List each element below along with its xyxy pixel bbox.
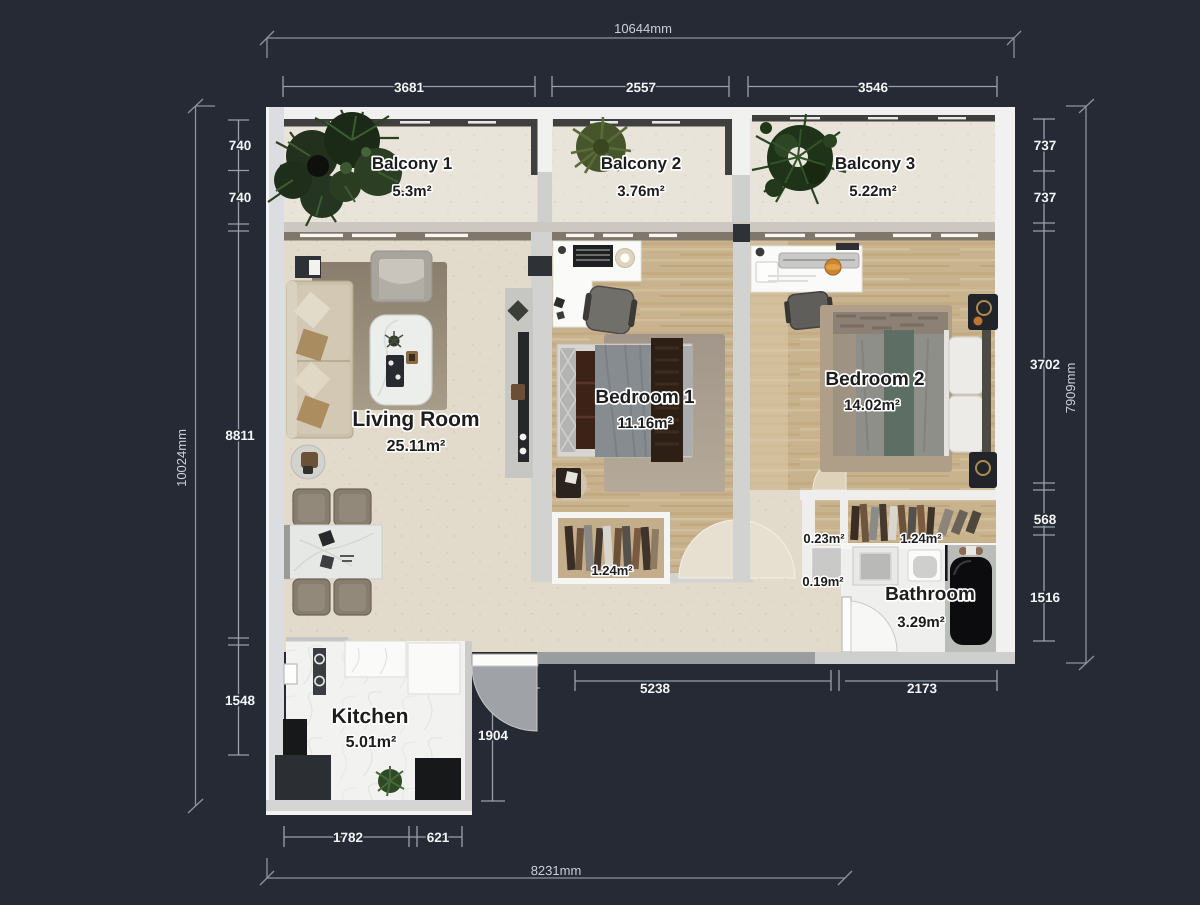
svg-text:8811: 8811: [225, 428, 255, 443]
svg-text:737: 737: [1034, 190, 1057, 205]
svg-text:0.19m²: 0.19m²: [802, 574, 844, 589]
svg-text:2173: 2173: [907, 681, 938, 696]
svg-text:7909mm: 7909mm: [1063, 363, 1078, 414]
svg-text:Bathroom: Bathroom: [885, 584, 975, 605]
svg-text:1782: 1782: [333, 830, 363, 845]
svg-text:Balcony 2: Balcony 2: [601, 154, 681, 173]
svg-text:Kitchen: Kitchen: [331, 705, 408, 728]
svg-text:568: 568: [1034, 512, 1057, 527]
svg-text:8231mm: 8231mm: [531, 863, 582, 878]
svg-text:3.29m²: 3.29m²: [897, 614, 945, 631]
svg-text:10644mm: 10644mm: [614, 21, 672, 36]
svg-text:11.16m²: 11.16m²: [617, 415, 672, 432]
svg-text:14.02m²: 14.02m²: [844, 397, 900, 414]
svg-text:5238: 5238: [640, 681, 671, 696]
svg-text:5.01m²: 5.01m²: [346, 734, 397, 751]
svg-text:5.3m²: 5.3m²: [392, 183, 431, 200]
svg-text:3546: 3546: [858, 80, 889, 95]
svg-text:3.76m²: 3.76m²: [617, 183, 665, 200]
svg-text:1.24m²: 1.24m²: [591, 563, 633, 578]
svg-text:Bedroom 1: Bedroom 1: [595, 387, 695, 408]
svg-text:2557: 2557: [626, 80, 656, 95]
svg-text:1516: 1516: [1030, 590, 1061, 605]
svg-text:1.24m²: 1.24m²: [900, 531, 942, 546]
svg-text:Living Room: Living Room: [352, 408, 479, 431]
svg-text:3681: 3681: [394, 80, 425, 95]
svg-text:10024mm: 10024mm: [174, 429, 189, 487]
svg-text:740: 740: [229, 190, 252, 205]
svg-text:Balcony 1: Balcony 1: [372, 154, 452, 173]
svg-text:0.23m²: 0.23m²: [803, 531, 845, 546]
svg-text:737: 737: [1034, 138, 1057, 153]
svg-text:1904: 1904: [478, 728, 509, 743]
svg-text:740: 740: [229, 138, 252, 153]
svg-text:1548: 1548: [225, 693, 256, 708]
svg-text:621: 621: [427, 830, 450, 845]
svg-text:25.11m²: 25.11m²: [387, 438, 446, 455]
svg-text:Balcony 3: Balcony 3: [835, 154, 915, 173]
svg-text:5.22m²: 5.22m²: [849, 183, 897, 200]
svg-text:Bedroom 2: Bedroom 2: [825, 369, 924, 390]
svg-text:3702: 3702: [1030, 357, 1060, 372]
